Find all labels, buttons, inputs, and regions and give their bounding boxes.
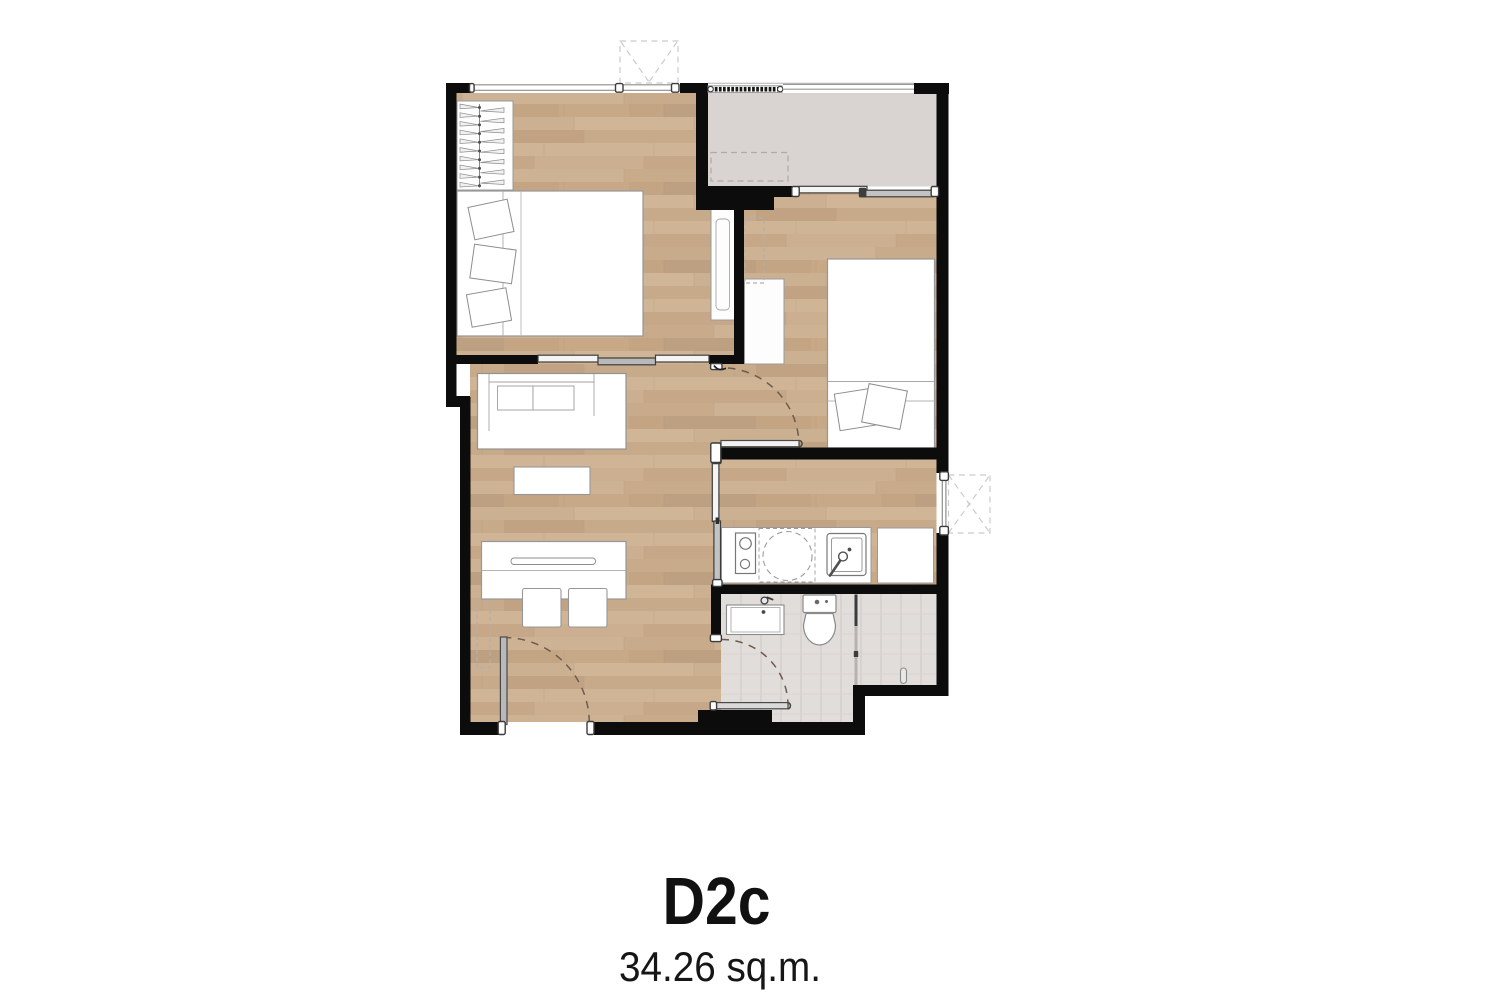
svg-text:D2c: D2c	[663, 864, 771, 939]
svg-text:34.26 sq.m.: 34.26 sq.m.	[619, 943, 821, 990]
